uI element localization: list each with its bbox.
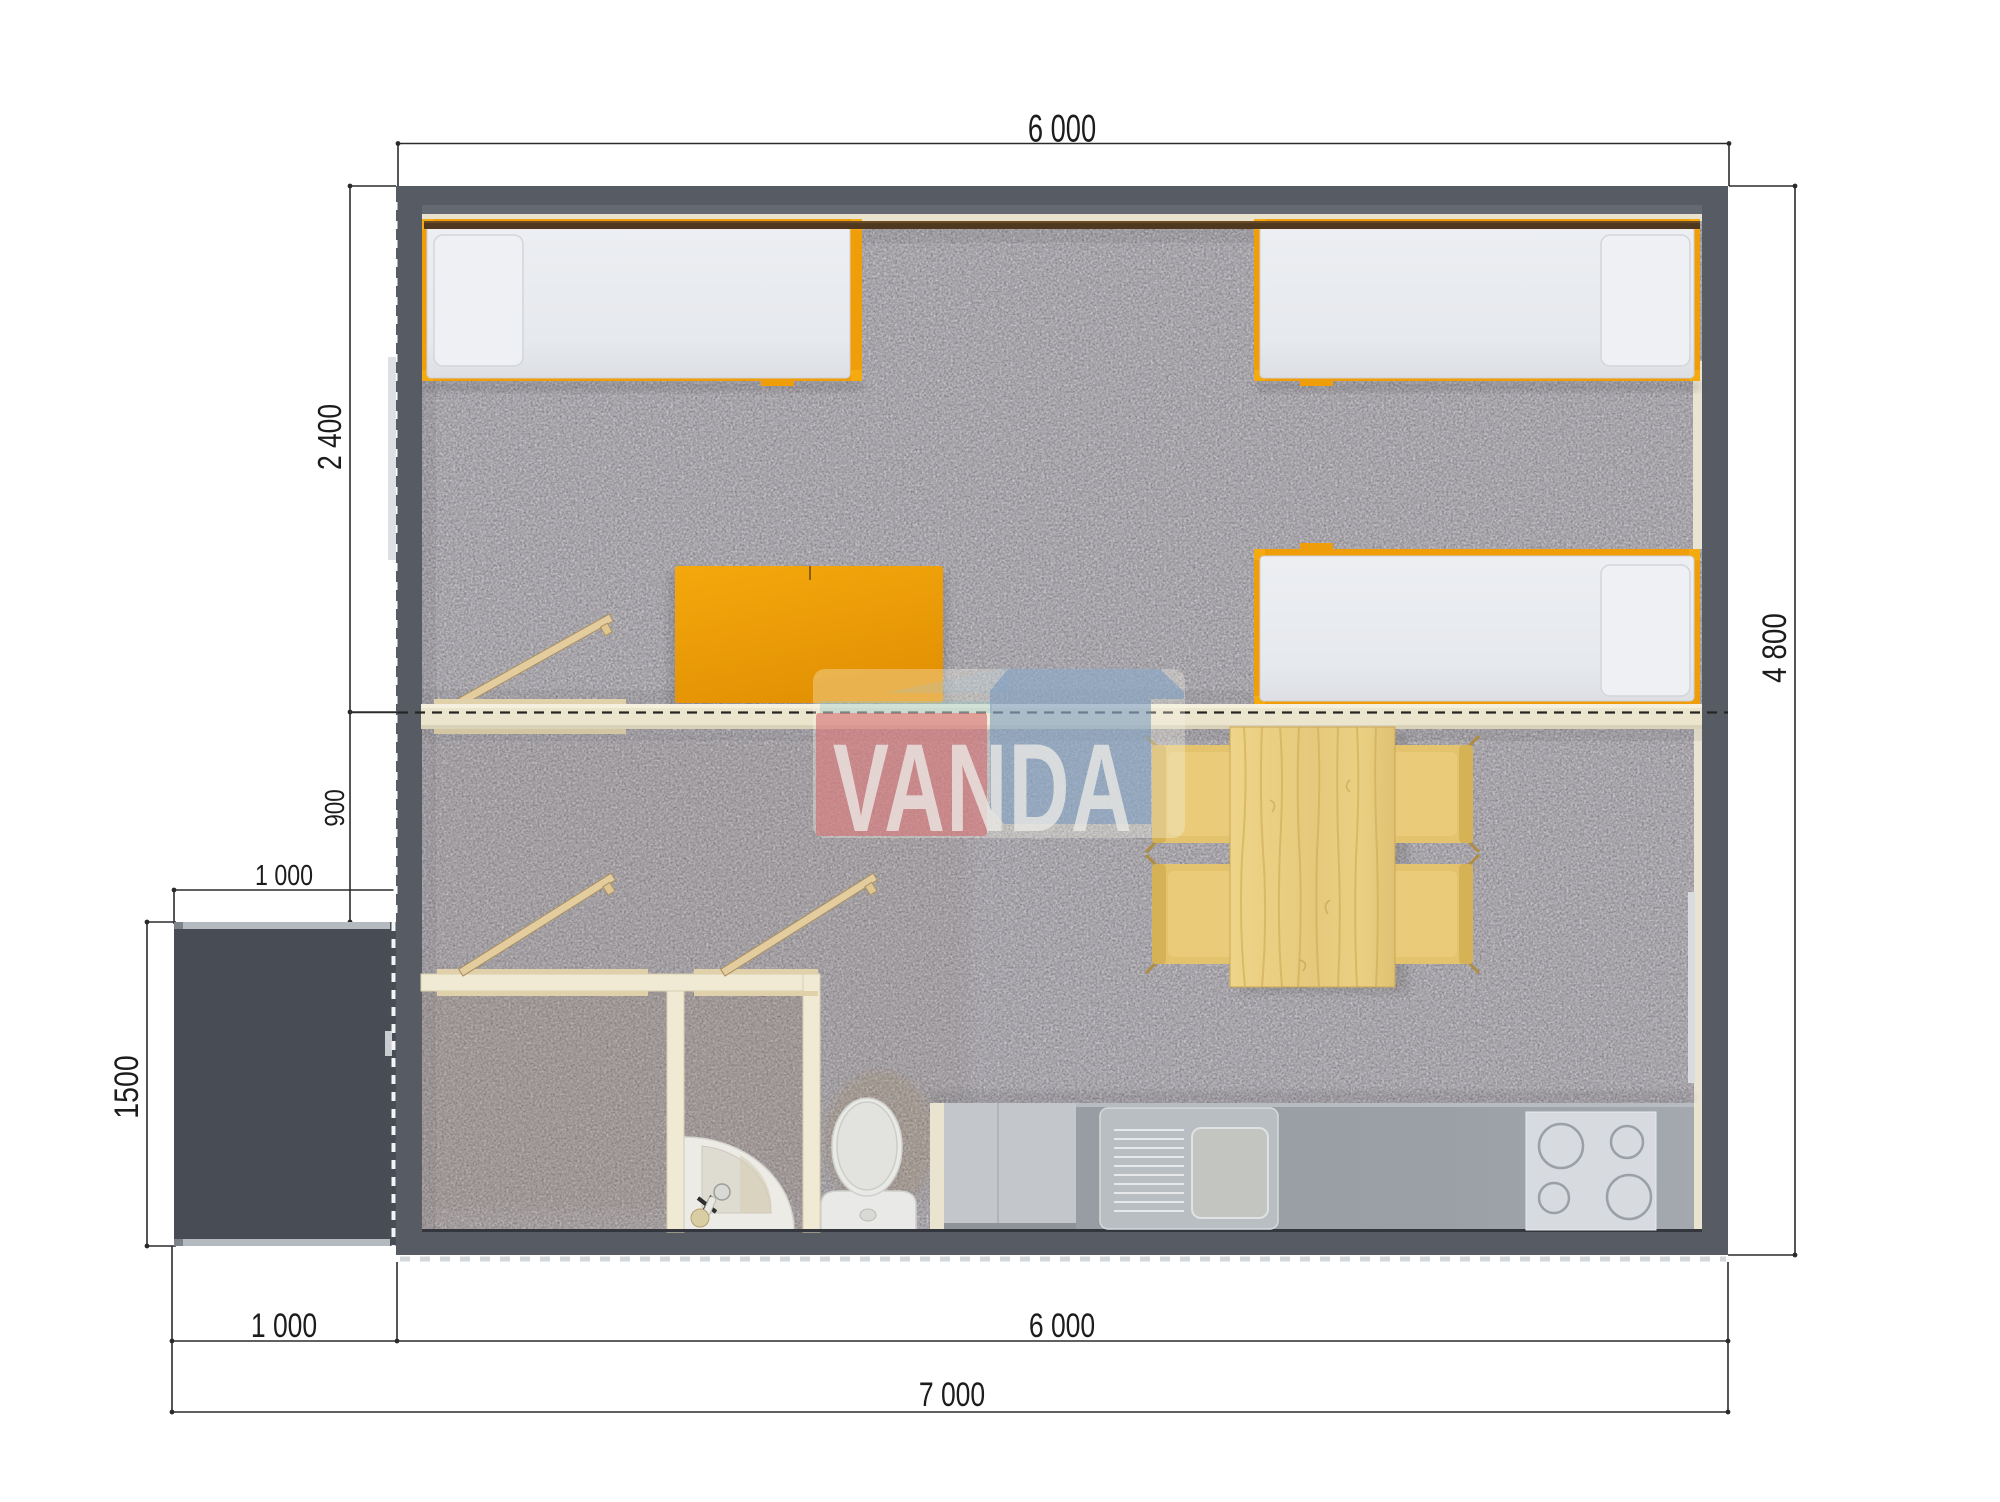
svg-text:7 000: 7 000	[919, 1376, 985, 1414]
svg-text:6 000: 6 000	[1028, 108, 1096, 151]
svg-text:VANDA: VANDA	[833, 717, 1133, 858]
svg-text:1500: 1500	[108, 1055, 146, 1119]
svg-text:4 800: 4 800	[1755, 613, 1793, 683]
svg-text:1 000: 1 000	[255, 858, 313, 891]
svg-text:2 400: 2 400	[312, 404, 348, 470]
svg-text:1 000: 1 000	[251, 1307, 317, 1345]
svg-text:6 000: 6 000	[1029, 1307, 1095, 1345]
svg-text:900: 900	[320, 789, 351, 826]
